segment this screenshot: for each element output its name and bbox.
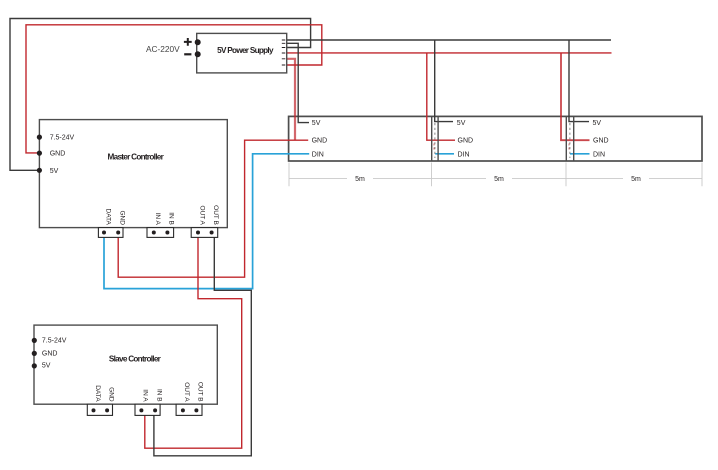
svg-text:GND: GND <box>593 138 609 145</box>
svg-text:DIN: DIN <box>593 151 605 158</box>
svg-text:AC-220V: AC-220V <box>146 44 180 54</box>
svg-text:DATA: DATA <box>104 209 111 226</box>
svg-text:5m: 5m <box>355 176 365 183</box>
svg-text:GND: GND <box>42 350 58 357</box>
svg-text:OUT B: OUT B <box>197 382 204 402</box>
svg-text:5V: 5V <box>312 120 321 127</box>
svg-text:OUT A: OUT A <box>183 382 190 402</box>
svg-text:GND: GND <box>119 210 126 225</box>
svg-text:GND: GND <box>458 138 474 145</box>
svg-text:5V: 5V <box>457 120 466 127</box>
svg-text:IN B: IN B <box>155 389 162 402</box>
svg-text:5m: 5m <box>494 176 504 183</box>
svg-text:5V: 5V <box>50 168 59 175</box>
svg-text:5V Power Supply: 5V Power Supply <box>217 46 274 55</box>
svg-text:5V: 5V <box>593 120 602 127</box>
svg-text:GND: GND <box>312 138 328 145</box>
svg-text:IN A: IN A <box>154 213 161 226</box>
svg-text:DIN: DIN <box>312 151 324 158</box>
svg-text:DATA: DATA <box>94 385 101 402</box>
svg-text:Master Controller: Master Controller <box>108 153 165 162</box>
svg-text:5V: 5V <box>42 363 51 370</box>
svg-text:DIN: DIN <box>458 151 470 158</box>
svg-text:IN A: IN A <box>142 389 149 402</box>
svg-text:OUT B: OUT B <box>212 205 219 225</box>
svg-text:OUT A: OUT A <box>198 206 205 226</box>
svg-text:GND: GND <box>107 387 114 402</box>
svg-text:5m: 5m <box>631 176 641 183</box>
svg-text:7.5-24V: 7.5-24V <box>50 135 75 142</box>
svg-text:GND: GND <box>50 151 66 158</box>
svg-text:Slave Controller: Slave Controller <box>109 355 162 364</box>
svg-text:7.5-24V: 7.5-24V <box>42 337 67 344</box>
svg-text:IN B: IN B <box>168 212 175 225</box>
